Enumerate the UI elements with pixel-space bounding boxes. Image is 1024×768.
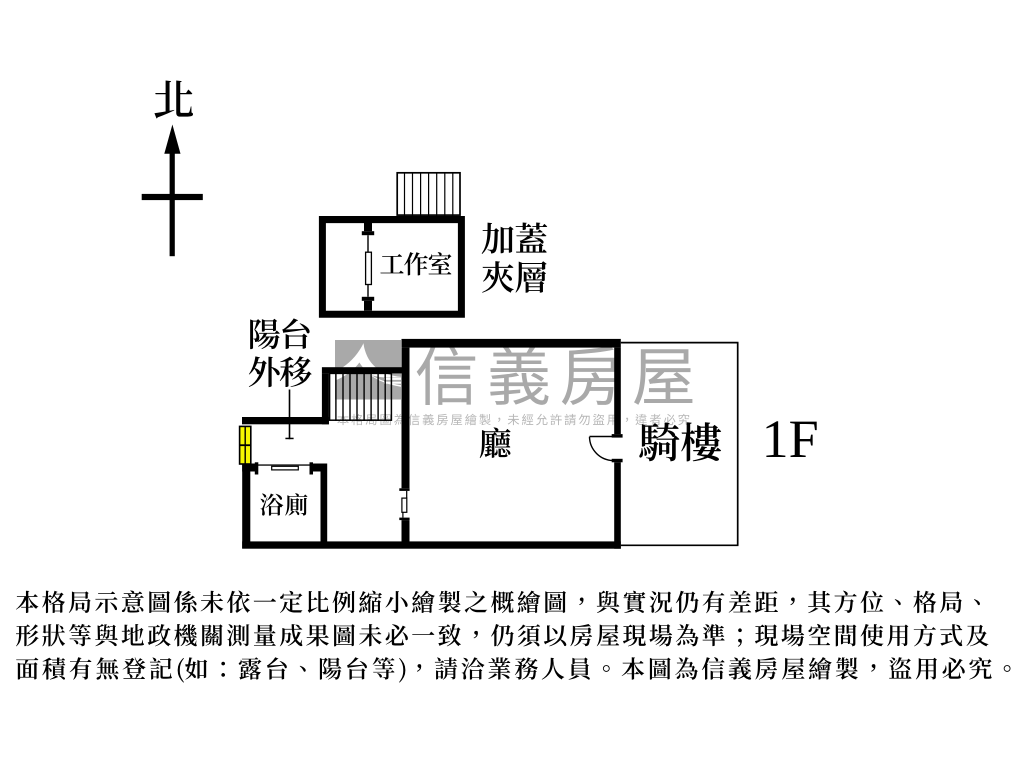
svg-text:1F: 1F <box>762 409 819 469</box>
